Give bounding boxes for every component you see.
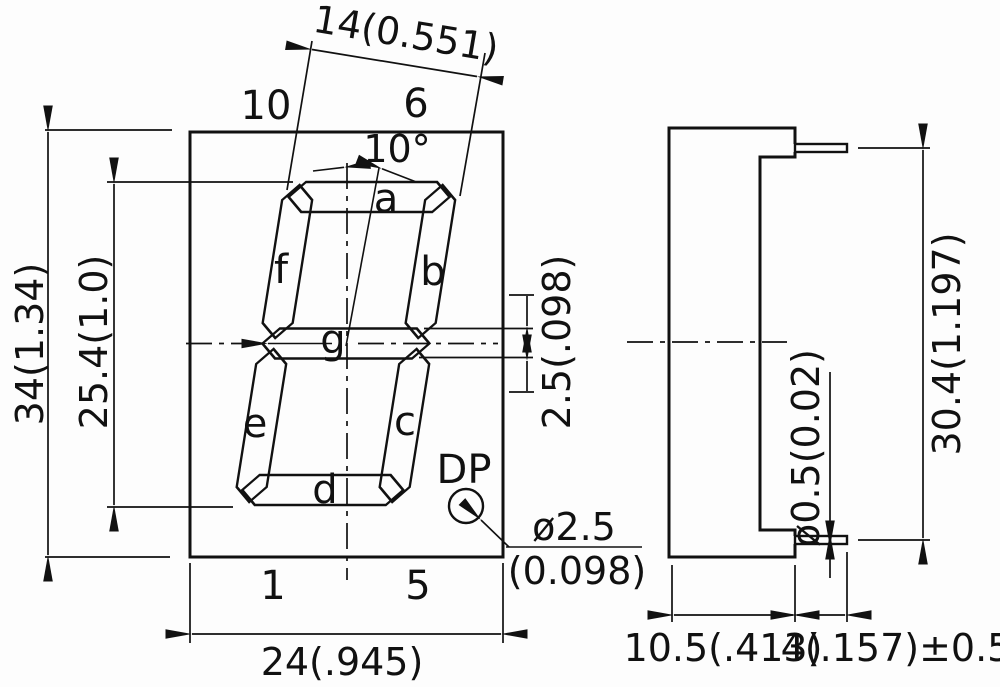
segment-f-label: f <box>274 247 289 293</box>
dim-dp-diameter-inch-label: (0.098) <box>508 549 646 593</box>
segment-a-label: a <box>374 176 399 222</box>
dp-center-dot <box>463 503 468 508</box>
technical-drawing-page: a f b g e c d 10° 10 6 14(0.551) <box>0 0 1000 687</box>
dp-label: DP <box>437 447 492 493</box>
front-view: a f b g e c d 10° 10 6 14(0.551) <box>8 0 646 684</box>
dim-height-overall-label: 34(1.34) <box>8 263 52 426</box>
dim-height-digit-label: 25.4(1.0) <box>72 255 116 430</box>
dim-pin-row-spacing-label: 30.4(1.197) <box>925 232 969 455</box>
dim-width-bottom: 24(.945) <box>190 563 503 684</box>
tilt-angle-label: 10° <box>363 127 430 171</box>
segment-b-label: b <box>420 249 445 295</box>
dim-pin-diameter-label: ø0.5(0.02) <box>784 349 828 547</box>
side-view: 30.4(1.197) ø0.5(0.02) 10.5(.413) 4(.157… <box>624 128 1000 670</box>
dim-seg-thickness-label: 2.5(.098) <box>535 255 579 430</box>
segment-g-label: g <box>320 317 345 363</box>
digit-tilt-axis <box>346 168 379 346</box>
dp-leader-arrow <box>481 520 509 547</box>
pin-5-label: 5 <box>405 563 430 609</box>
dim-width-bottom-label: 24(.945) <box>261 640 424 684</box>
pin-6-label: 6 <box>403 81 428 127</box>
segment-d-label: d <box>312 467 337 513</box>
side-top-pin <box>795 144 847 152</box>
angle-arrow-left <box>313 167 344 171</box>
decimal-point: DP ø2.5 (0.098) <box>437 447 647 593</box>
dim-height-digit: 25.4(1.0) <box>72 182 293 507</box>
segment-c-label: c <box>394 399 416 445</box>
dim-pin-row-spacing: 30.4(1.197) <box>858 148 969 540</box>
tilt-angle-annotation: 10° <box>313 127 431 182</box>
dim-dp-diameter-label: ø2.5 <box>532 505 616 549</box>
drawing-canvas: a f b g e c d 10° 10 6 14(0.551) <box>0 0 1000 687</box>
segment-e-label: e <box>243 401 268 447</box>
pin-1-label: 1 <box>260 563 285 609</box>
dim-pin-diameter: ø0.5(0.02) <box>784 349 830 578</box>
dim-pin-length-label: 4(.157)±0.5 <box>781 626 1000 670</box>
pin-10-label: 10 <box>241 83 292 129</box>
dim-width-top-label: 14(0.551) <box>310 0 501 71</box>
dims-side-bottom: 10.5(.413) 4(.157)±0.5 <box>624 552 1000 670</box>
